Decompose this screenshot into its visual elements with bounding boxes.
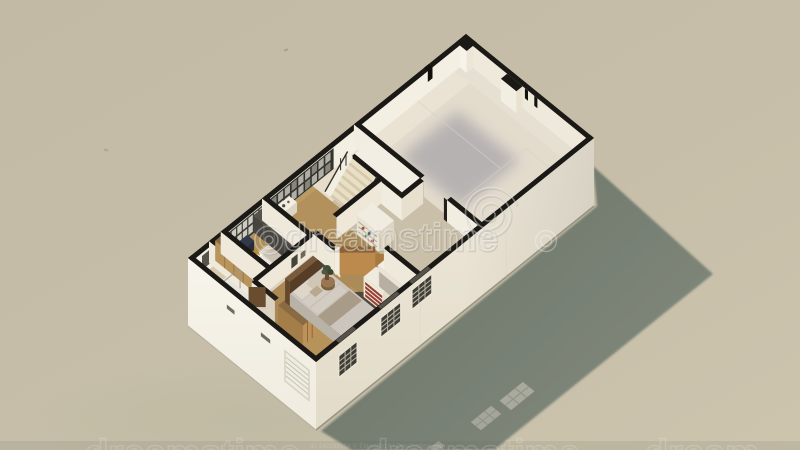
svg-text:ID 140188558 © Ekkasit919 | Dr: ID 140188558 © Ekkasit919 | Dreamstime.c… (310, 442, 445, 450)
svg-text:dreamstime: dreamstime (284, 217, 497, 259)
svg-text:dreamstime: dreamstime (85, 433, 300, 450)
svg-text:dream: dream (645, 433, 759, 450)
